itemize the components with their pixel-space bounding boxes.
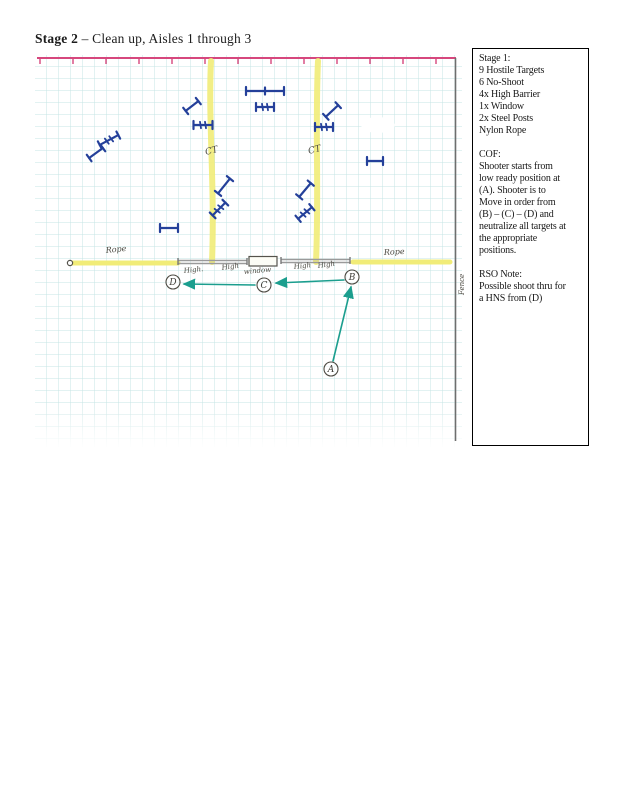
svg-text:B: B xyxy=(348,273,356,283)
steel-post-marker xyxy=(67,260,72,265)
info-line xyxy=(479,137,586,149)
window-shape xyxy=(249,257,277,267)
info-line: COF: xyxy=(479,149,586,161)
info-line: 4x High Barrier xyxy=(479,89,586,101)
whiteout-smudge xyxy=(361,117,395,133)
rope-right-label: Rope xyxy=(383,247,405,257)
info-line: 9 Hostile Targets xyxy=(479,65,586,77)
position-marker-b: B xyxy=(345,270,359,284)
info-line: the appropriate xyxy=(479,233,586,245)
info-line: low ready position at xyxy=(479,173,586,185)
info-line: (B) – (C) – (D) and xyxy=(479,209,586,221)
arrow-c-to-d xyxy=(184,284,255,285)
info-line: 2x Steel Posts xyxy=(479,113,586,125)
svg-text:A: A xyxy=(327,365,335,375)
info-line: a HNS from (D) xyxy=(479,293,586,305)
info-line: Nylon Rope xyxy=(479,125,586,137)
info-line xyxy=(479,257,586,269)
info-line: Move in order from xyxy=(479,197,586,209)
svg-text:D: D xyxy=(168,278,176,288)
stage-info-box: Stage 1:9 Hostile Targets6 No-Shoot4x Hi… xyxy=(472,48,589,446)
aisle-left-line xyxy=(210,61,213,262)
position-marker-a: A xyxy=(324,362,338,376)
info-line: 6 No-Shoot xyxy=(479,77,586,89)
info-line: positions. xyxy=(479,245,586,257)
info-line: (A). Shooter is to xyxy=(479,185,586,197)
fence-label: Fence xyxy=(458,274,466,296)
info-line: neutralize all targets at xyxy=(479,221,586,233)
position-marker-d: D xyxy=(166,275,180,289)
grid-bottom-fade xyxy=(35,405,462,449)
info-line: 1x Window xyxy=(479,101,586,113)
position-marker-c: C xyxy=(257,278,271,292)
aisle-right-line xyxy=(316,61,318,262)
info-line: Shooter starts from xyxy=(479,161,586,173)
svg-text:C: C xyxy=(261,281,268,291)
scanned-document-page: { "page": { "title_bold": "Stage 2", "ti… xyxy=(0,0,619,800)
info-line: Stage 1: xyxy=(479,53,586,65)
info-line: RSO Note: xyxy=(479,269,586,281)
info-line: Possible shoot thru for xyxy=(479,281,586,293)
